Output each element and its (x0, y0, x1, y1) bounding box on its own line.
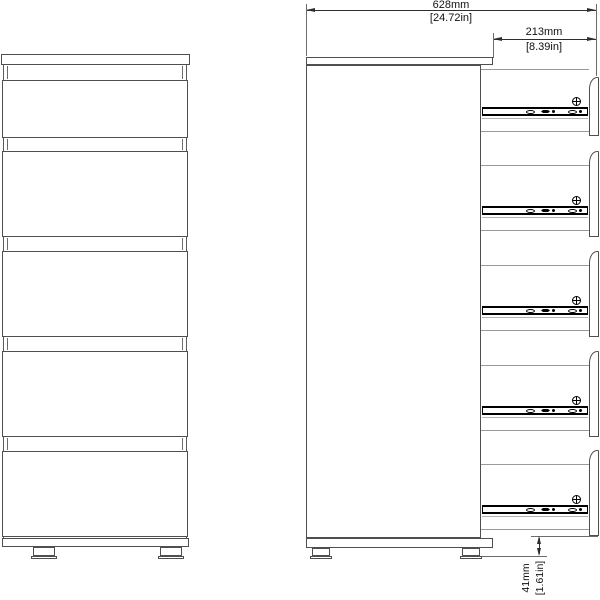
dim-width-line (306, 10, 596, 11)
dimension-annotations: 628mm [24.72in] 213mm [8.39in] 41mm [1.6… (0, 0, 600, 600)
dim-foot-mm-label: 41mm (519, 557, 533, 599)
dim-depth-line (493, 39, 596, 40)
dim-arrow-left-icon (493, 37, 502, 41)
dim-arrow-left-icon (306, 8, 315, 12)
dim-extension-line (306, 4, 307, 56)
dim-arrow-right-icon (587, 8, 596, 12)
dim-foot-in-label: [1.61in] (533, 557, 547, 599)
dim-width-in-label: [24.72in] (391, 13, 511, 24)
dim-depth-in-label: [8.39in] (484, 42, 600, 53)
dim-arrow-up-icon (537, 536, 541, 544)
dim-arrow-right-icon (587, 37, 596, 41)
dim-extension-line (596, 4, 597, 76)
dim-arrow-down-icon (537, 548, 541, 556)
dim-extension-line (493, 33, 494, 58)
dim-foot-label-group: 41mm [1.61in] (519, 557, 549, 599)
furniture-technical-drawing: 628mm [24.72in] 213mm [8.39in] 41mm [1.6… (0, 0, 600, 600)
dim-extension-line (531, 536, 598, 537)
